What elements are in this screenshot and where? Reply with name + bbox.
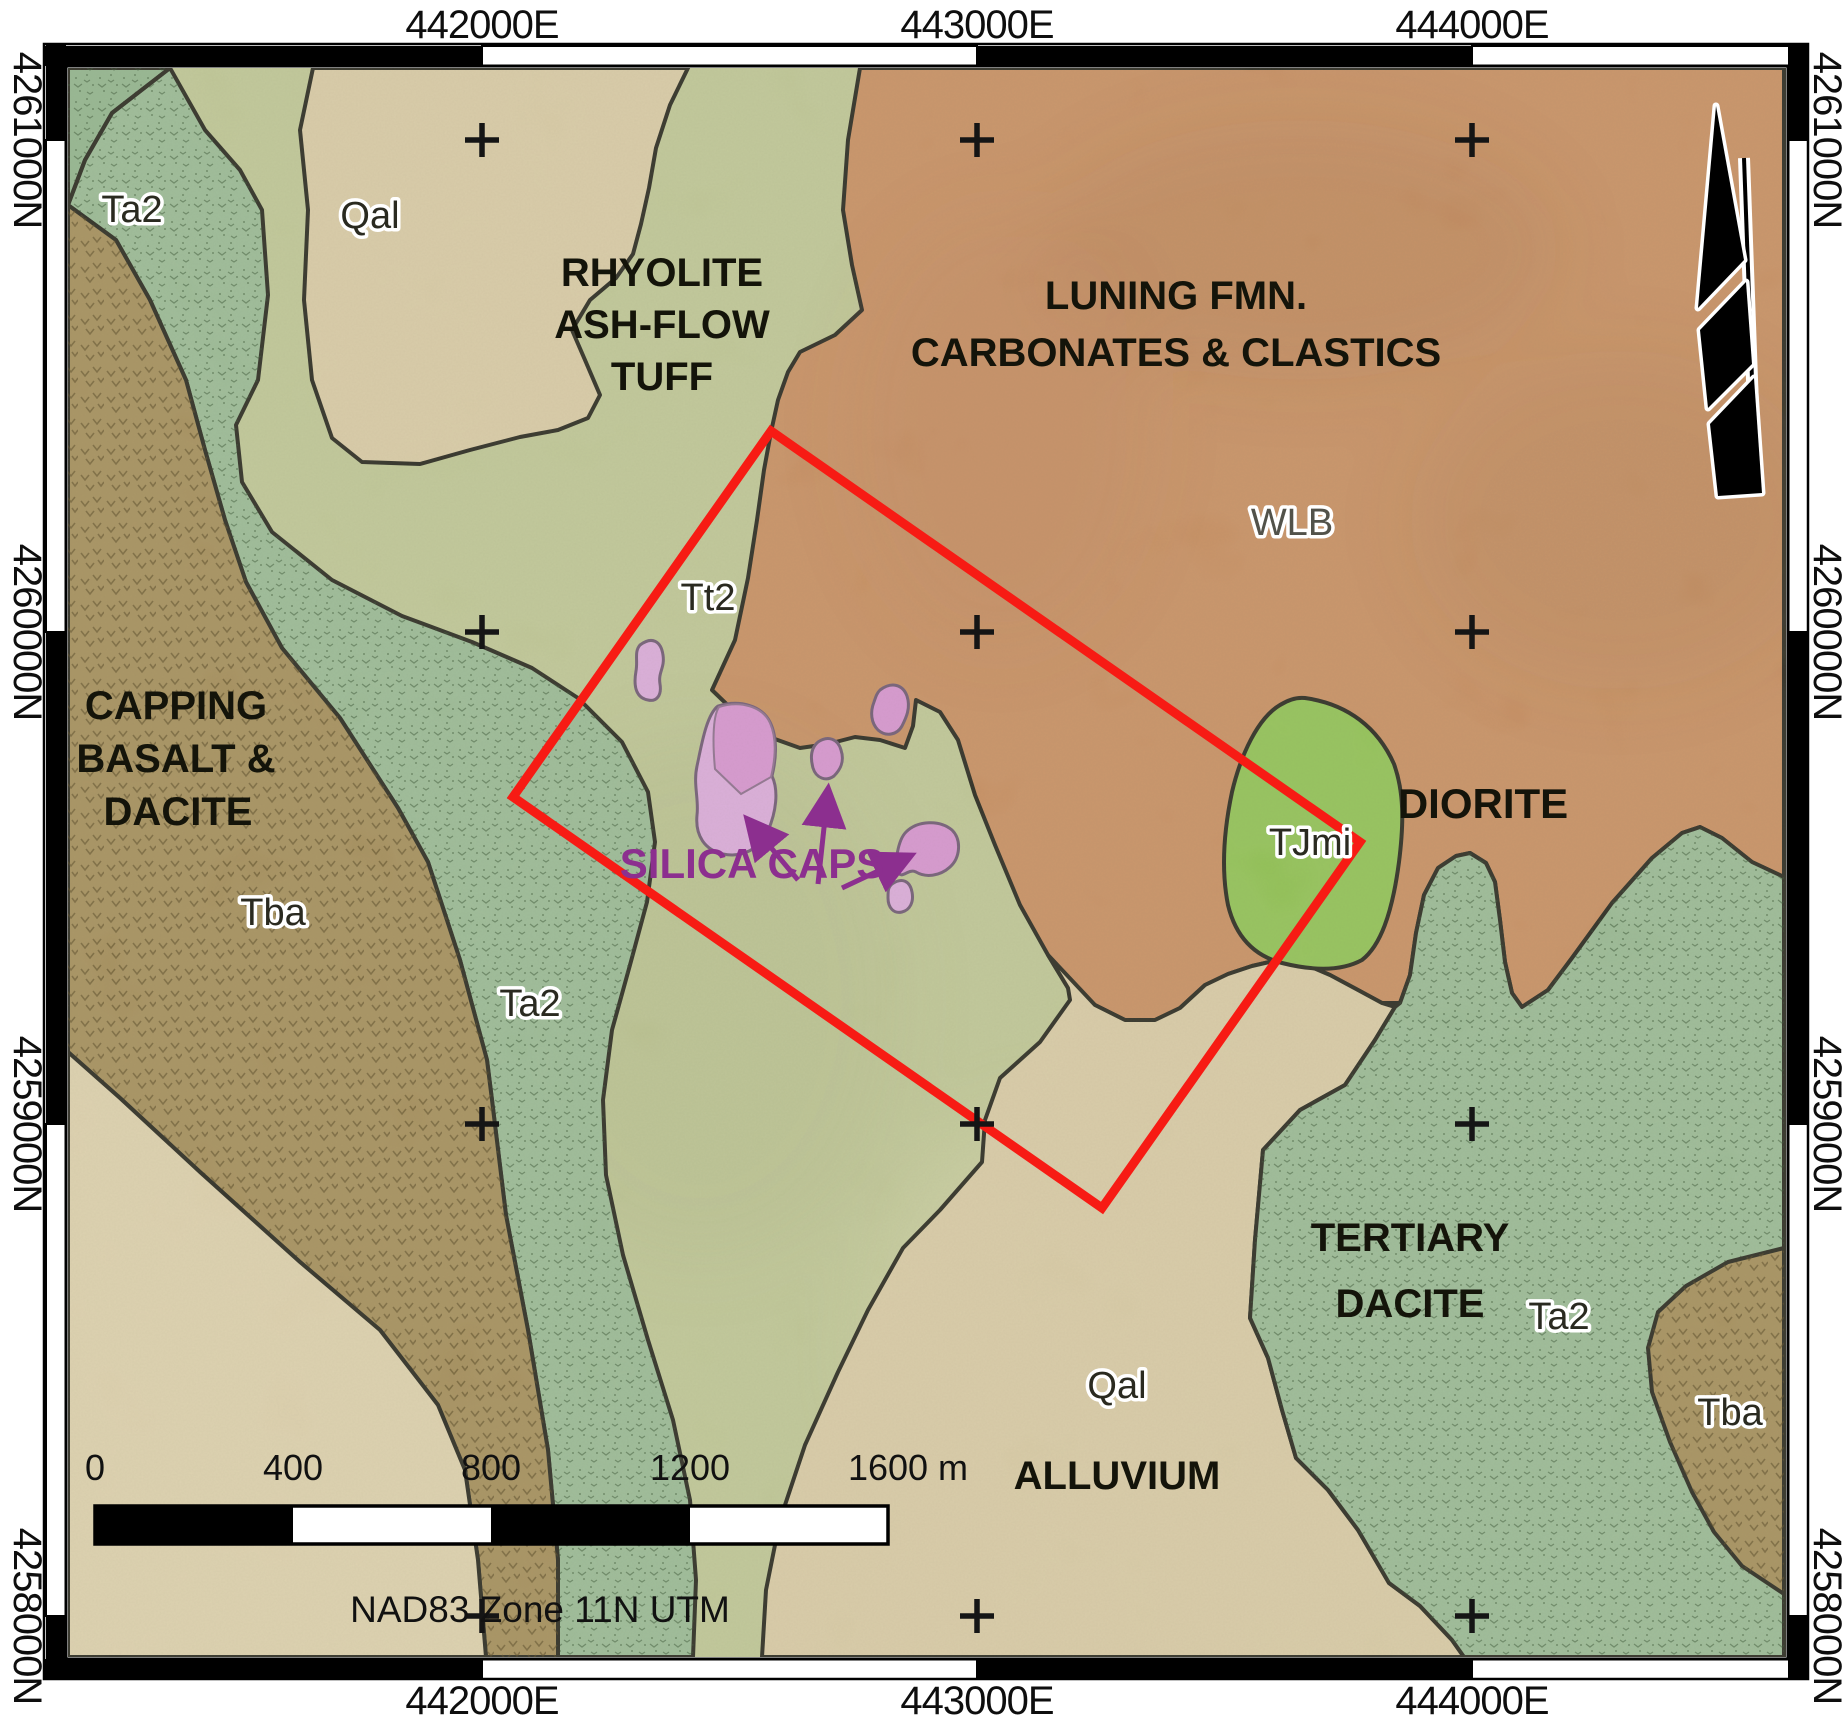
label-unit-tjmi: TJmi: [1269, 822, 1351, 864]
frame-segment: [1788, 140, 1808, 632]
frame-segment: [1788, 1124, 1808, 1616]
label-capping-line2: BASALT &: [76, 737, 275, 781]
scale-tick-1600m: 1600 m: [848, 1447, 968, 1488]
scale-tick-400: 400: [263, 1447, 323, 1488]
scale-tick-1200: 1200: [650, 1447, 730, 1488]
label-unit-ta2-w: Ta2: [499, 983, 560, 1025]
label-unit-tba-w: Tba: [240, 892, 306, 934]
frame-segment: [482, 46, 977, 66]
easting-label-bottom: 444000E: [1395, 1679, 1548, 1723]
geologic-map-figure: RHYOLITE ASH-FLOW TUFF LUNING FMN. CARBO…: [0, 0, 1848, 1725]
scale-tick-0: 0: [85, 1447, 105, 1488]
northing-label-right: 4258000N: [1805, 1528, 1848, 1705]
label-alluvium: ALLUVIUM: [1014, 1454, 1221, 1498]
label-rhyolite-line1: RHYOLITE: [561, 251, 763, 295]
label-silica-caps: SILICA CAPS: [620, 840, 884, 887]
frame-segment: [977, 46, 1472, 66]
easting-label-bottom: 442000E: [405, 1679, 558, 1723]
scale-bar-segment-black: [491, 1506, 690, 1544]
frame-segment: [1472, 46, 1808, 66]
frame-segment: [1788, 44, 1808, 140]
frame-segment: [482, 1659, 977, 1679]
label-unit-tt2: Tt2: [681, 577, 736, 619]
easting-label-top: 443000E: [900, 3, 1053, 47]
datum-note: NAD83 Zone 11N UTM: [350, 1589, 730, 1630]
map-canvas: RHYOLITE ASH-FLOW TUFF LUNING FMN. CARBO…: [0, 0, 1848, 1725]
label-capping-line1: CAPPING: [85, 684, 267, 728]
label-luning-line1: LUNING FMN.: [1045, 274, 1307, 318]
label-unit-qal-nw: Qal: [340, 195, 399, 237]
northing-label-left: 4259000N: [5, 1036, 49, 1213]
easting-label-top: 442000E: [405, 3, 558, 47]
frame-segment: [1788, 1616, 1808, 1679]
easting-label-top: 444000E: [1395, 3, 1548, 47]
northing-label-right: 4259000N: [1805, 1036, 1848, 1213]
label-unit-qal-s: Qal: [1087, 1365, 1146, 1407]
frame-segment: [1472, 1659, 1808, 1679]
easting-label-bottom: 443000E: [900, 1679, 1053, 1723]
frame-segment: [977, 1659, 1472, 1679]
label-luning-line2: CARBONATES & CLASTICS: [911, 331, 1441, 375]
frame-segment: [44, 46, 482, 66]
map-area: RHYOLITE ASH-FLOW TUFF LUNING FMN. CARBO…: [68, 68, 1830, 1657]
texture-grain: [68, 68, 1786, 1657]
northing-label-left: 4260000N: [5, 544, 49, 721]
label-capping-line3: DACITE: [104, 790, 253, 834]
northing-label-left: 4258000N: [5, 1528, 49, 1705]
label-unit-ta2-nw: Ta2: [101, 189, 162, 231]
label-rhyolite-line2: ASH-FLOW: [554, 303, 770, 347]
label-diorite: DIORITE: [1398, 780, 1568, 827]
northing-label-left: 4261000N: [5, 52, 49, 229]
label-tertiary-line1: TERTIARY: [1311, 1216, 1510, 1260]
frame-segment: [1788, 632, 1808, 1124]
scale-bar-segment-black: [95, 1506, 293, 1544]
frame-segment: [44, 1659, 482, 1679]
scale-tick-800: 800: [461, 1447, 521, 1488]
label-unit-wlb: WLB: [1251, 502, 1333, 544]
northing-label-right: 4260000N: [1805, 544, 1848, 721]
label-rhyolite-line3: TUFF: [611, 355, 713, 399]
label-tertiary-line2: DACITE: [1336, 1282, 1485, 1326]
label-unit-tba-se: Tba: [1697, 1392, 1763, 1434]
label-unit-ta2-se: Ta2: [1528, 1296, 1589, 1338]
northing-label-right: 4261000N: [1805, 52, 1848, 229]
